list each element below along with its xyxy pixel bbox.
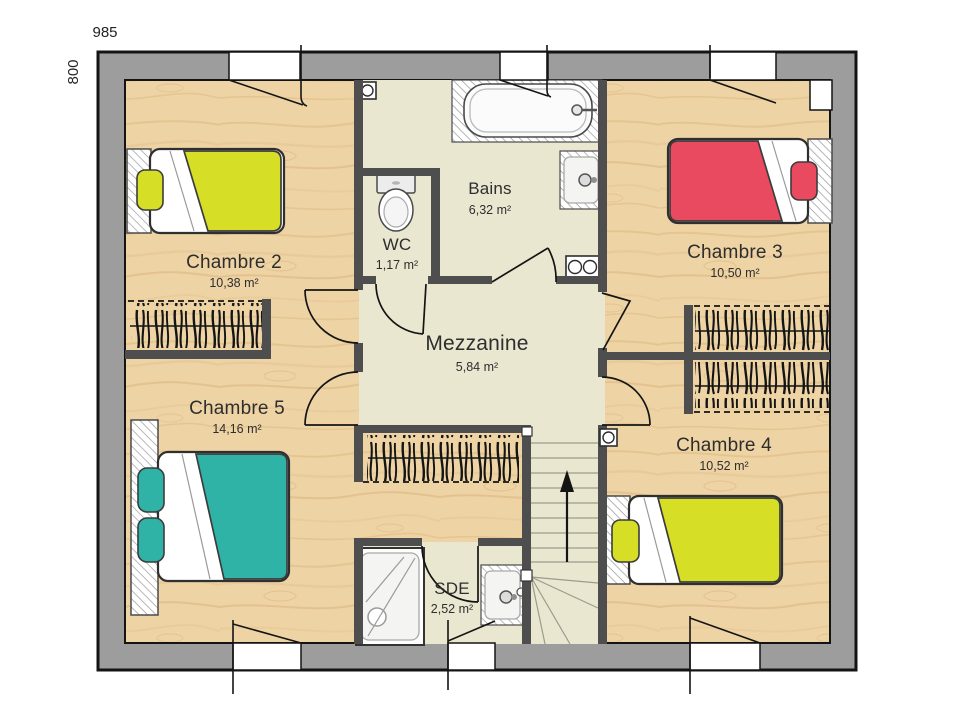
room-label-bains: Bains — [468, 179, 512, 198]
wall-niche — [810, 80, 832, 110]
room-area-chambre2: 10,38 m² — [209, 276, 258, 290]
room-area-chambre5: 14,16 m² — [212, 422, 261, 436]
vent-box-icon — [600, 429, 617, 446]
shower-icon — [356, 548, 424, 645]
room-label-mezzanine: Mezzanine — [425, 332, 528, 355]
room-label-chambre3: Chambre 3 — [687, 242, 783, 263]
sde-sink-icon — [481, 565, 525, 625]
floor-plan-page: 985 800 — [0, 0, 960, 713]
window — [710, 52, 776, 80]
bed-chambre2 — [127, 149, 284, 233]
room-label-wc: WC — [383, 235, 412, 254]
window — [500, 52, 548, 80]
wardrobe-chambre3 — [694, 306, 830, 353]
window — [690, 643, 760, 670]
bed-pillow — [612, 520, 639, 562]
room-area-chambre3: 10,50 m² — [710, 266, 759, 280]
room-area-sde: 2,52 m² — [431, 602, 473, 616]
bains-sink-icon — [560, 151, 602, 209]
bed-blanket — [658, 498, 780, 582]
toilet-icon — [377, 173, 415, 231]
bed-chambre4 — [604, 496, 782, 584]
window — [233, 643, 301, 670]
room-area-mezzanine: 5,84 m² — [456, 360, 498, 374]
room-label-chambre4: Chambre 4 — [676, 435, 772, 456]
window — [448, 643, 495, 670]
room-area-wc: 1,17 m² — [376, 258, 418, 272]
wardrobe-corridor — [363, 435, 521, 482]
room-label-chambre5: Chambre 5 — [189, 398, 285, 419]
room-label-chambre2: Chambre 2 — [186, 252, 282, 273]
double-socket-icon — [566, 256, 599, 278]
bed-chambre3 — [668, 139, 832, 223]
window — [229, 52, 300, 80]
hangers-icon — [695, 362, 829, 408]
bed-pillow — [137, 170, 163, 210]
bed-pillow — [791, 162, 817, 200]
floor-plan-canvas: 985 800 — [0, 0, 960, 713]
room-label-sde: SDE — [434, 579, 470, 598]
dimension-height-label: 800 — [65, 59, 82, 84]
room-area-chambre4: 10,52 m² — [699, 459, 748, 473]
bed-pillow — [138, 468, 164, 512]
wardrobe-chambre4 — [694, 362, 830, 412]
wardrobe-chambre2 — [128, 301, 266, 348]
dimension-width-label: 985 — [92, 24, 117, 41]
bed-pillow — [138, 518, 164, 562]
room-area-bains: 6,32 m² — [469, 203, 511, 217]
